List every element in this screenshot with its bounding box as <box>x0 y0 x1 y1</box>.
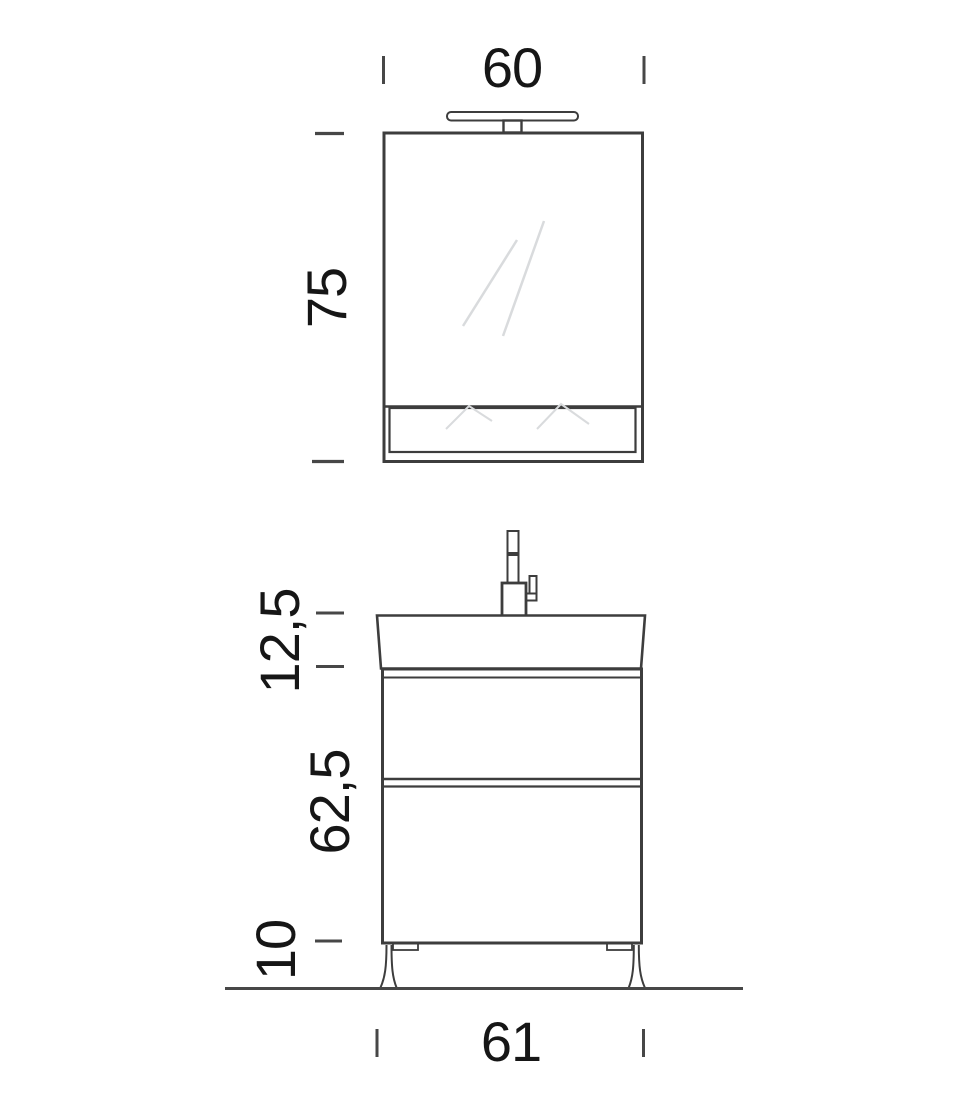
faucet-body <box>502 583 526 616</box>
faucet <box>502 531 537 616</box>
dim-label-basin-height: 12,5 <box>250 571 310 711</box>
dim-label-vanity-width: 61 <box>441 1012 581 1072</box>
dim-label-mirror-width: 60 <box>442 38 582 98</box>
dim-label-mirror-height: 75 <box>297 228 357 368</box>
dim-label-vanity-body-height: 62,5 <box>300 732 360 872</box>
mirror-shine-line <box>503 221 544 336</box>
vanity-cabinet-outline <box>383 669 642 943</box>
technical-drawing-canvas: 60 75 12,5 62,5 10 61 <box>0 0 970 1109</box>
mirror-cabinet <box>384 112 643 462</box>
mirror-shine-line <box>463 240 517 326</box>
legs <box>381 944 645 988</box>
shelf-shine-mark <box>446 406 492 429</box>
shelf-front-panel <box>390 408 636 452</box>
mirror-cabinet-outline <box>384 133 643 462</box>
right-leg <box>629 945 645 988</box>
light-fixture-mount <box>504 121 522 133</box>
faucet-spout <box>508 531 519 583</box>
dim-label-legs-height: 10 <box>246 880 306 1020</box>
furniture-line-drawing <box>0 0 970 1109</box>
left-leg <box>381 945 397 988</box>
dimension-ticks <box>312 56 644 1057</box>
basin-outline <box>377 616 645 669</box>
light-fixture-bar <box>447 112 578 121</box>
